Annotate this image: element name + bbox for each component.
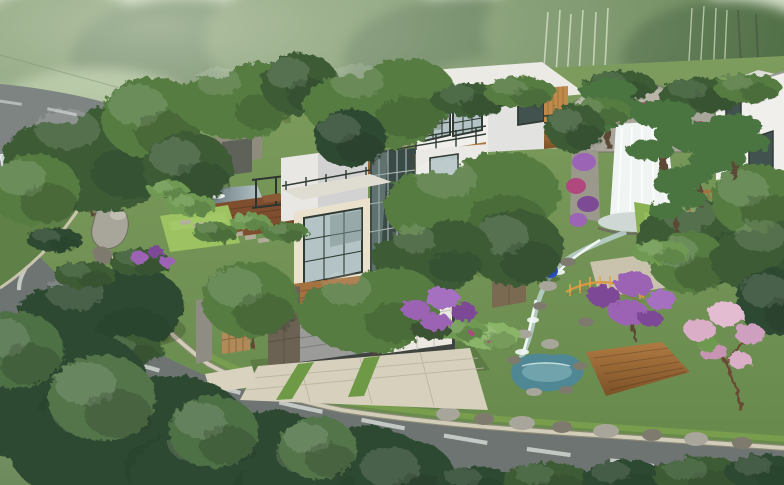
cream-window: [304, 208, 362, 284]
villa-rendering: [0, 0, 784, 485]
